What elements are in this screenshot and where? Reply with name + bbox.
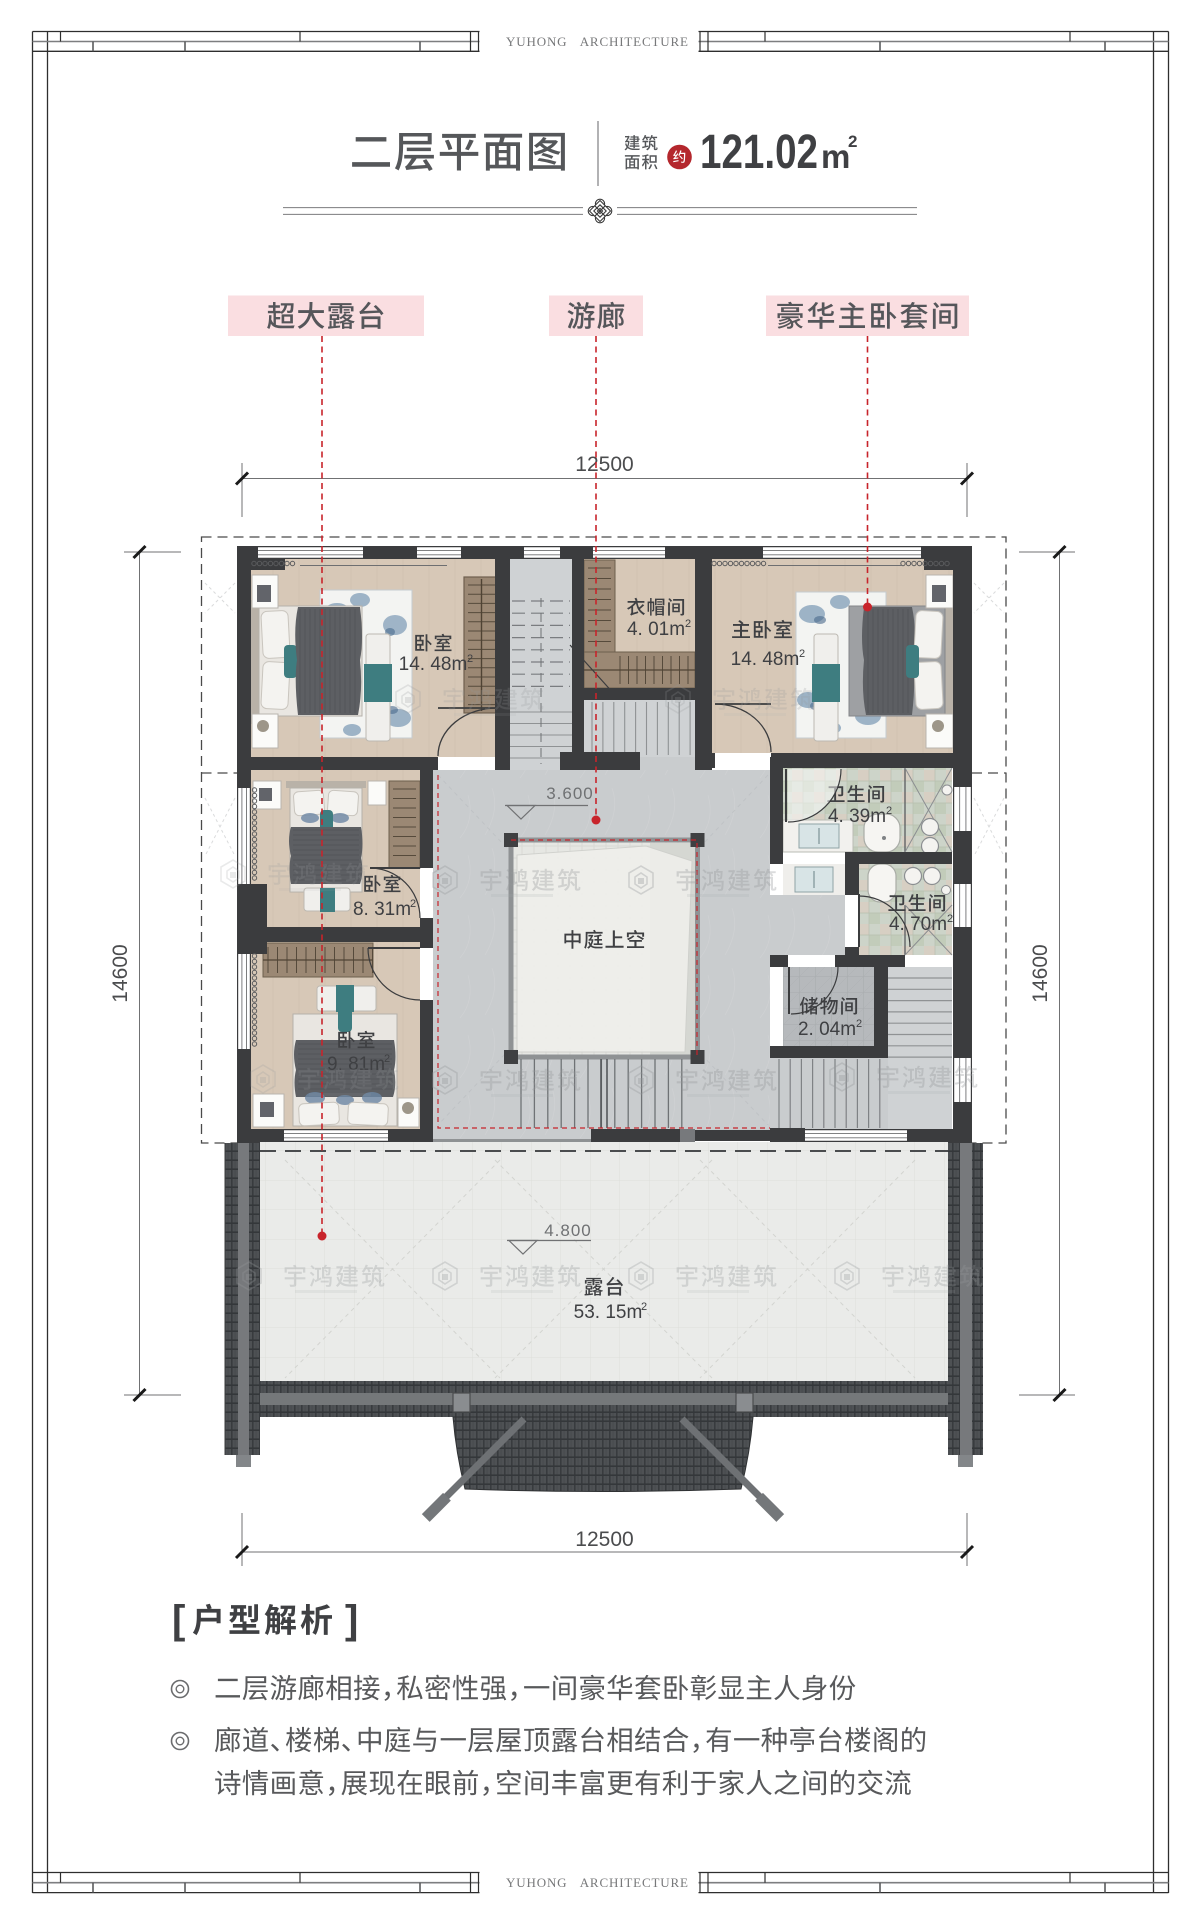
svg-text:4.800: 4.800 (544, 1221, 592, 1240)
svg-text:2: 2 (947, 913, 953, 925)
svg-text:4. 70m: 4. 70m (889, 914, 947, 935)
svg-text:4. 39m: 4. 39m (828, 806, 886, 827)
svg-text:8. 31m: 8. 31m (353, 899, 411, 920)
svg-text:2: 2 (384, 1053, 390, 1065)
svg-text:4. 01m: 4. 01m (627, 619, 685, 640)
svg-text:53. 15m: 53. 15m (574, 1302, 643, 1323)
svg-text:12500: 12500 (575, 453, 633, 476)
svg-text:14. 48m: 14. 48m (399, 654, 468, 675)
svg-text:2: 2 (641, 1301, 647, 1313)
svg-text:2: 2 (799, 648, 805, 660)
svg-text:2: 2 (410, 898, 416, 910)
svg-text:YUHONG ARCHITECTURE: YUHONG ARCHITECTURE (506, 34, 688, 49)
svg-text:m: m (821, 138, 850, 175)
svg-text:3.600: 3.600 (546, 784, 594, 803)
svg-text:2: 2 (856, 1018, 862, 1030)
svg-text:YUHONG ARCHITECTURE: YUHONG ARCHITECTURE (506, 1875, 688, 1890)
svg-text:12500: 12500 (575, 1528, 633, 1551)
svg-text:]: ] (345, 1598, 358, 1642)
svg-text:2: 2 (848, 132, 857, 151)
svg-text:14600: 14600 (109, 944, 132, 1002)
svg-text:14600: 14600 (1029, 944, 1052, 1002)
svg-text:[: [ (172, 1598, 185, 1642)
svg-text:121.02: 121.02 (700, 126, 818, 179)
svg-text:2: 2 (467, 653, 473, 665)
svg-text:2: 2 (886, 805, 892, 817)
svg-text:2. 04m: 2. 04m (798, 1019, 856, 1040)
svg-text:2: 2 (685, 618, 691, 630)
svg-text:14. 48m: 14. 48m (731, 649, 800, 670)
